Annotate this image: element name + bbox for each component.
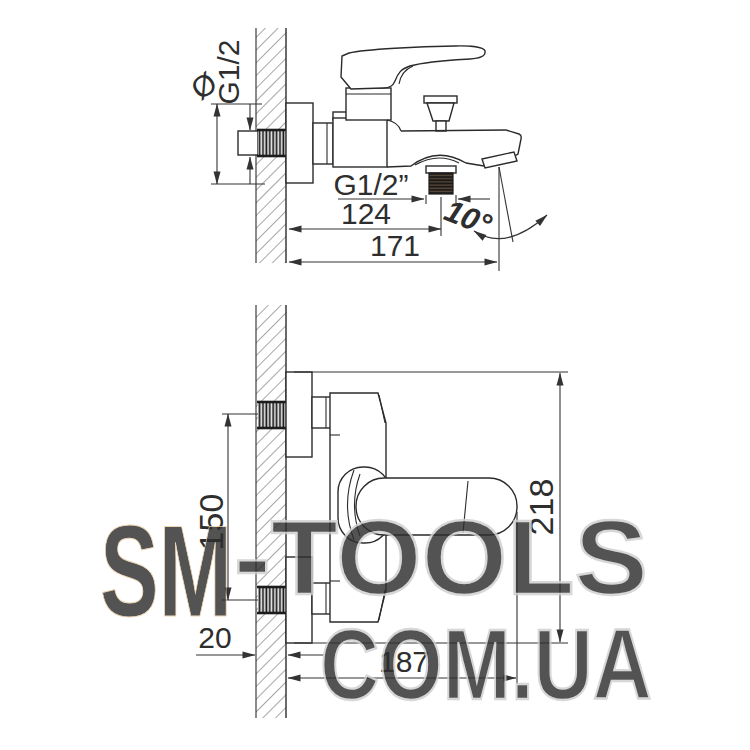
watermark-brand-primary: SM	[100, 498, 232, 644]
wall-thread-connection	[257, 130, 287, 156]
diverter-knob	[424, 96, 457, 131]
supply-pipe-stub	[238, 131, 258, 155]
spout	[387, 130, 521, 168]
upper-hex-nut	[312, 397, 332, 428]
dimension-wall-thread-diameter: Ø G1/2	[185, 39, 265, 184]
cartridge-collar	[346, 88, 391, 120]
watermark: SM -TOOLS COM.UA	[100, 498, 652, 720]
dimension-spout-angle: 10°	[440, 167, 547, 271]
hex-nut	[313, 123, 333, 164]
watermark-brand-secondary: -TOOLS	[234, 499, 648, 616]
outlet-flange	[426, 166, 456, 173]
shower-outlet-thread	[429, 173, 453, 194]
aerator-outlet	[482, 152, 517, 168]
upper-escutcheon	[286, 372, 312, 457]
escutcheon-plate	[286, 103, 313, 183]
dim-171-label: 171	[370, 229, 420, 262]
valve-body	[333, 118, 387, 167]
upper-wall-thread	[257, 402, 287, 428]
spout-angle-label: 10°	[440, 193, 497, 243]
faucet-dimension-drawing: Ø G1/2 G1/2” 124 171 10°	[0, 0, 750, 750]
wall-thread-size-label: G1/2	[212, 39, 245, 104]
side-view-drawing: Ø G1/2 G1/2” 124 171 10°	[185, 28, 547, 271]
dim-124-label: 124	[341, 197, 391, 230]
lever-handle	[341, 46, 485, 89]
body-shoulder-curve	[387, 120, 401, 131]
watermark-domain: COM.UA	[320, 608, 652, 720]
technical-drawing-page: Ø G1/2 G1/2” 124 171 10°	[0, 0, 750, 750]
